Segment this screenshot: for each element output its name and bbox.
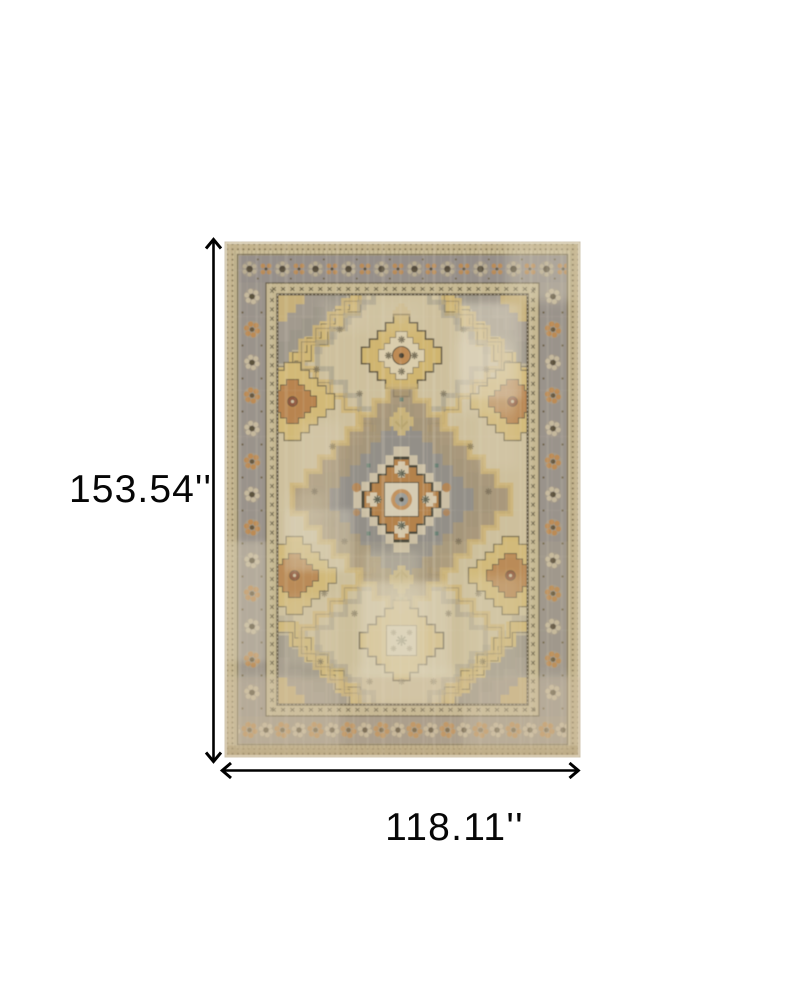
svg-text:118.11'': 118.11'' <box>385 806 524 849</box>
svg-text:153.54'': 153.54'' <box>69 468 212 511</box>
